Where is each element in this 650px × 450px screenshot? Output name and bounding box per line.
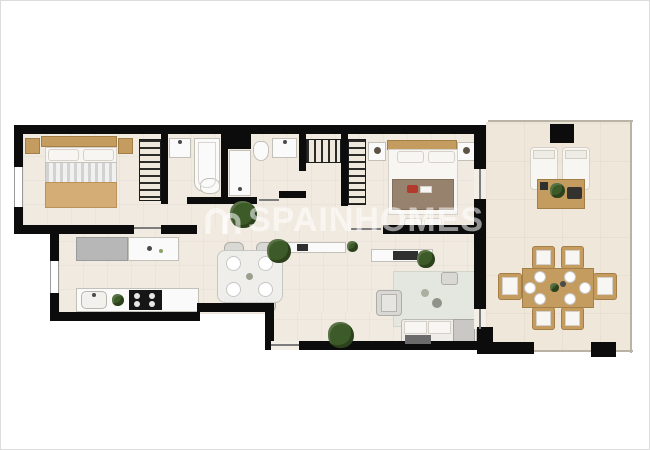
terrace-pillar-bottom [591, 342, 616, 357]
terrace-chair-cushion [536, 250, 551, 265]
kitchen-upper-faucet [147, 246, 152, 251]
kitchen-sink-faucet [92, 293, 96, 297]
kitchen-worktop-upper [128, 237, 179, 261]
terrace-pillar-top [550, 124, 574, 143]
wall-kitchen-bottom [50, 312, 200, 321]
bedroom1-window [14, 167, 23, 207]
terrace-door1-line [479, 169, 481, 199]
terrace-plate [534, 271, 546, 283]
bedroom2-door [351, 228, 381, 230]
wall-right-upper [474, 125, 486, 169]
bedroom2-magazine [420, 186, 432, 193]
bedroom1-headboard [41, 136, 117, 147]
bedroom2-lamp-right [463, 147, 470, 154]
living-armchair-seat [381, 294, 397, 312]
terrace-chair-cushion [502, 277, 518, 295]
hall-console [284, 242, 346, 253]
floor-terrace [486, 122, 632, 352]
terrace-chair-cushion [565, 311, 580, 326]
bedroom2-lamp-left [374, 147, 381, 154]
bedroom1-nightstand-left [25, 138, 40, 154]
kitchen-plant [112, 294, 124, 306]
terrace-door2-line [479, 309, 481, 329]
hall-console-plant [347, 241, 358, 252]
bedroom2-wardrobe-a [306, 139, 341, 163]
wall-bath1-bottom [187, 197, 228, 204]
terrace-table-plant [550, 183, 565, 198]
terrace-chair-cushion [597, 277, 613, 295]
dining-plate [226, 256, 241, 271]
tv [393, 251, 418, 260]
bedroom1-blanket-striped [45, 162, 117, 183]
bath2-shower-drain [238, 187, 242, 191]
bedroom1-pillow-left [48, 149, 79, 161]
wall-hall-half [279, 191, 306, 198]
living-floor-plant [328, 322, 354, 348]
wall-right-mid [474, 199, 486, 309]
terrace-table-tray [567, 187, 582, 199]
terrace-lounger-right-headrest [565, 150, 587, 159]
terrace-table-box [540, 182, 548, 190]
wall-bath1-left [161, 134, 168, 204]
bath2-faucet [283, 140, 287, 144]
bedroom1-blanket-tan [45, 182, 117, 208]
wall-left-upper [14, 131, 23, 167]
wall-shower-stub [223, 134, 251, 149]
terrace-plate [564, 271, 576, 283]
bedroom1-pillow-right [83, 149, 114, 161]
floor-plan-image: SPAINHOMES [0, 0, 650, 450]
bedroom2-wardrobe-b [348, 139, 366, 205]
burner [149, 301, 155, 307]
dining-centerpiece [246, 273, 253, 280]
bath1-faucet [178, 140, 182, 144]
hall-plant [230, 201, 257, 228]
living-sideboard-plant [417, 250, 435, 268]
hall-console-item [297, 244, 308, 251]
terrace-chair-cushion [565, 250, 580, 265]
terrace-plate [534, 293, 546, 305]
wall-bedroom2-left [341, 134, 348, 206]
bedroom1-door [134, 227, 161, 229]
bedroom2-red-cushion [407, 185, 418, 193]
sofa-throw [405, 335, 431, 344]
bedroom1-wardrobe [139, 139, 161, 201]
terrace-rail-top [488, 120, 633, 122]
burner [134, 301, 140, 307]
bedroom2-pillow-left [397, 151, 424, 163]
wall-bedroom1-bottom-b [161, 225, 197, 234]
wall-bedroom1-bottom-a [14, 225, 134, 234]
terrace-rail-right [630, 120, 632, 353]
wall-top [14, 125, 486, 134]
wall-bath2-right [299, 134, 306, 171]
sofa-cushion [428, 321, 451, 334]
terrace-plate [564, 293, 576, 305]
burner [149, 293, 155, 299]
sofa-cushion [404, 321, 427, 334]
bedroom2-blanket [392, 179, 454, 210]
terrace-table-item [560, 281, 566, 287]
coffee-table-item [432, 298, 442, 308]
kitchen-window [50, 261, 59, 293]
bath2-toilet [253, 141, 269, 161]
dining-plate [258, 282, 273, 297]
wall-kitchen-left-a [50, 231, 59, 261]
bedroom2-pillow-right [428, 151, 455, 163]
wall-bedroom2-bottom [383, 225, 474, 234]
coffee-table-item [421, 289, 429, 297]
corridor-plant [267, 239, 291, 263]
wall-dining-bottom [197, 303, 274, 312]
terrace-lounger-left-headrest [533, 150, 555, 159]
terrace-table-centerpiece [550, 283, 559, 292]
bedroom1-nightstand-right [118, 138, 133, 154]
kitchen-upper-item [159, 249, 163, 253]
living-slider-line [271, 344, 299, 346]
dining-plate [226, 282, 241, 297]
wall-corner-block-b [477, 342, 534, 354]
bath1-bathtub-inner [198, 142, 216, 188]
terrace-plate [579, 282, 591, 294]
burner [134, 293, 140, 299]
bath2-door [259, 199, 279, 201]
terrace-plate [524, 282, 536, 294]
terrace-chair-cushion [536, 311, 551, 326]
living-pouf [441, 272, 458, 285]
kitchen-fridge-counter [76, 237, 128, 261]
kitchen-cooktop [129, 290, 162, 310]
